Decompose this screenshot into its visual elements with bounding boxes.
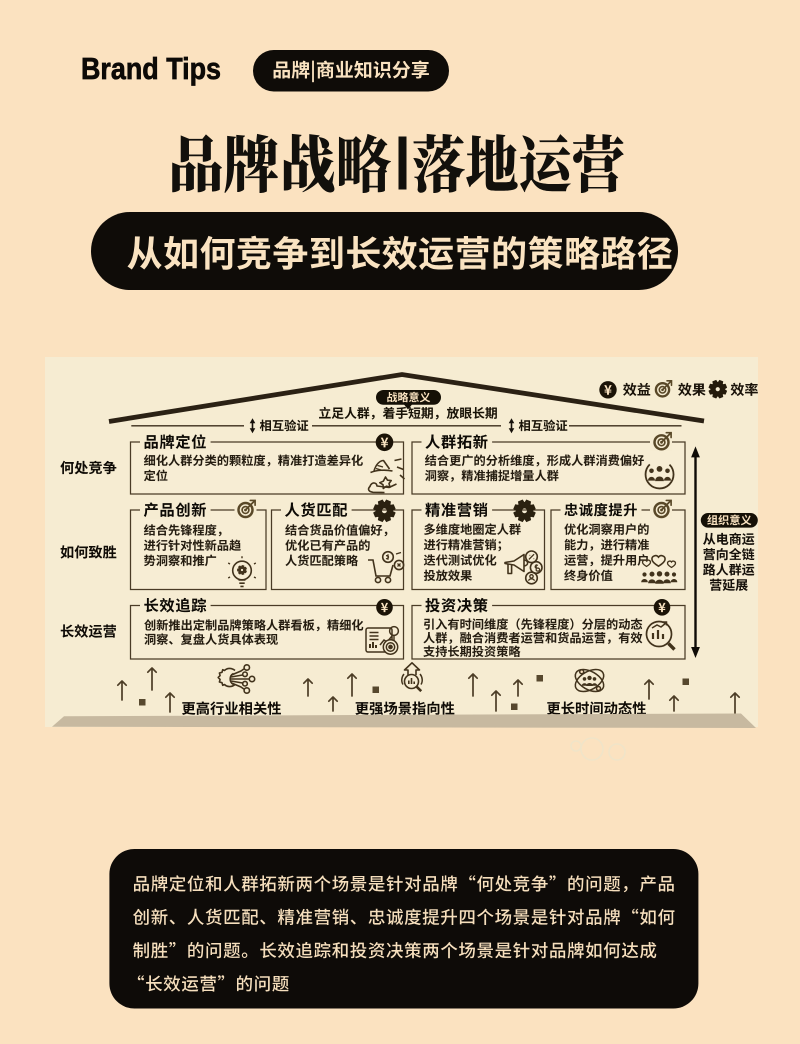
svg-text:Brand Tips: Brand Tips: [81, 51, 221, 86]
